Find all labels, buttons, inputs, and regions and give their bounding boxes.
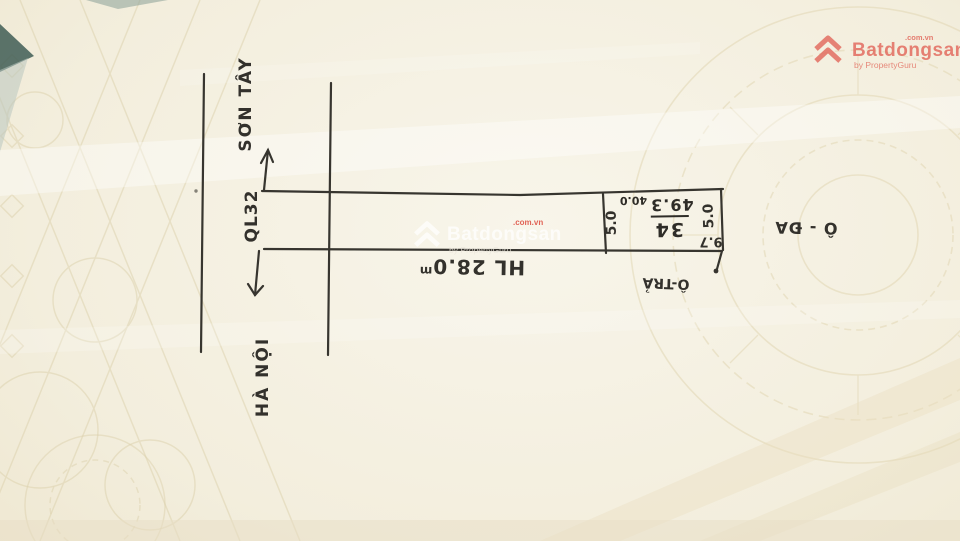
watermark-domain-text: .com.vn — [513, 218, 543, 227]
watermark-brand-text: Batdongsan — [852, 40, 960, 62]
stray-ink-dot — [194, 189, 197, 192]
direction-arrow-up — [261, 150, 273, 190]
corner-dot — [714, 269, 719, 274]
direction-arrow-down — [248, 251, 263, 295]
neighbor-label-o-da: Ô - ĐA — [774, 218, 837, 238]
plot-area: 49.3 — [650, 195, 694, 215]
road-label-ql32: QL32 — [242, 190, 262, 243]
watermark-top-right: Batdongsan .com.vn by PropertyGuru — [810, 28, 960, 76]
plot-area-secondary: 40.0 — [620, 194, 647, 207]
plot-dim-right: 5.0 — [701, 203, 718, 228]
plot-dim-left: 5.0 — [604, 211, 620, 236]
road-ql32-edge-left-line — [201, 74, 204, 352]
plot-dim-depth: 9.7 — [699, 234, 722, 249]
plot-number-area-fraction: 34 49.3 40.0 — [620, 193, 694, 241]
plot-number: 34 — [620, 218, 684, 241]
batdongsan-logo-icon — [410, 215, 444, 251]
direction-label-ha-noi: HÀ NỘI — [253, 337, 273, 417]
watermark-domain-text: .com.vn — [905, 33, 933, 42]
frontage-length-unit: m — [419, 264, 433, 278]
direction-label-son-tay: SƠN TÂY — [236, 56, 256, 151]
land-sketch-photo: SƠN TÂY QL32 HÀ NỘI HL 28.0m 34 49.3 40.… — [0, 0, 960, 541]
batdongsan-logo-icon — [810, 28, 846, 68]
road-ql32-edge-right-line — [328, 83, 331, 355]
watermark-byline-text: by PropertyGuru — [449, 245, 511, 255]
neighbor-label-o-tra: Ô-TRẢ — [642, 274, 690, 292]
watermark-center: Batdongsan .com.vn by PropertyGuru — [410, 215, 560, 260]
watermark-byline-text: by PropertyGuru — [854, 60, 916, 70]
watermark-brand-text: Batdongsan — [447, 224, 562, 246]
plot-corner-tick-line — [717, 251, 722, 269]
